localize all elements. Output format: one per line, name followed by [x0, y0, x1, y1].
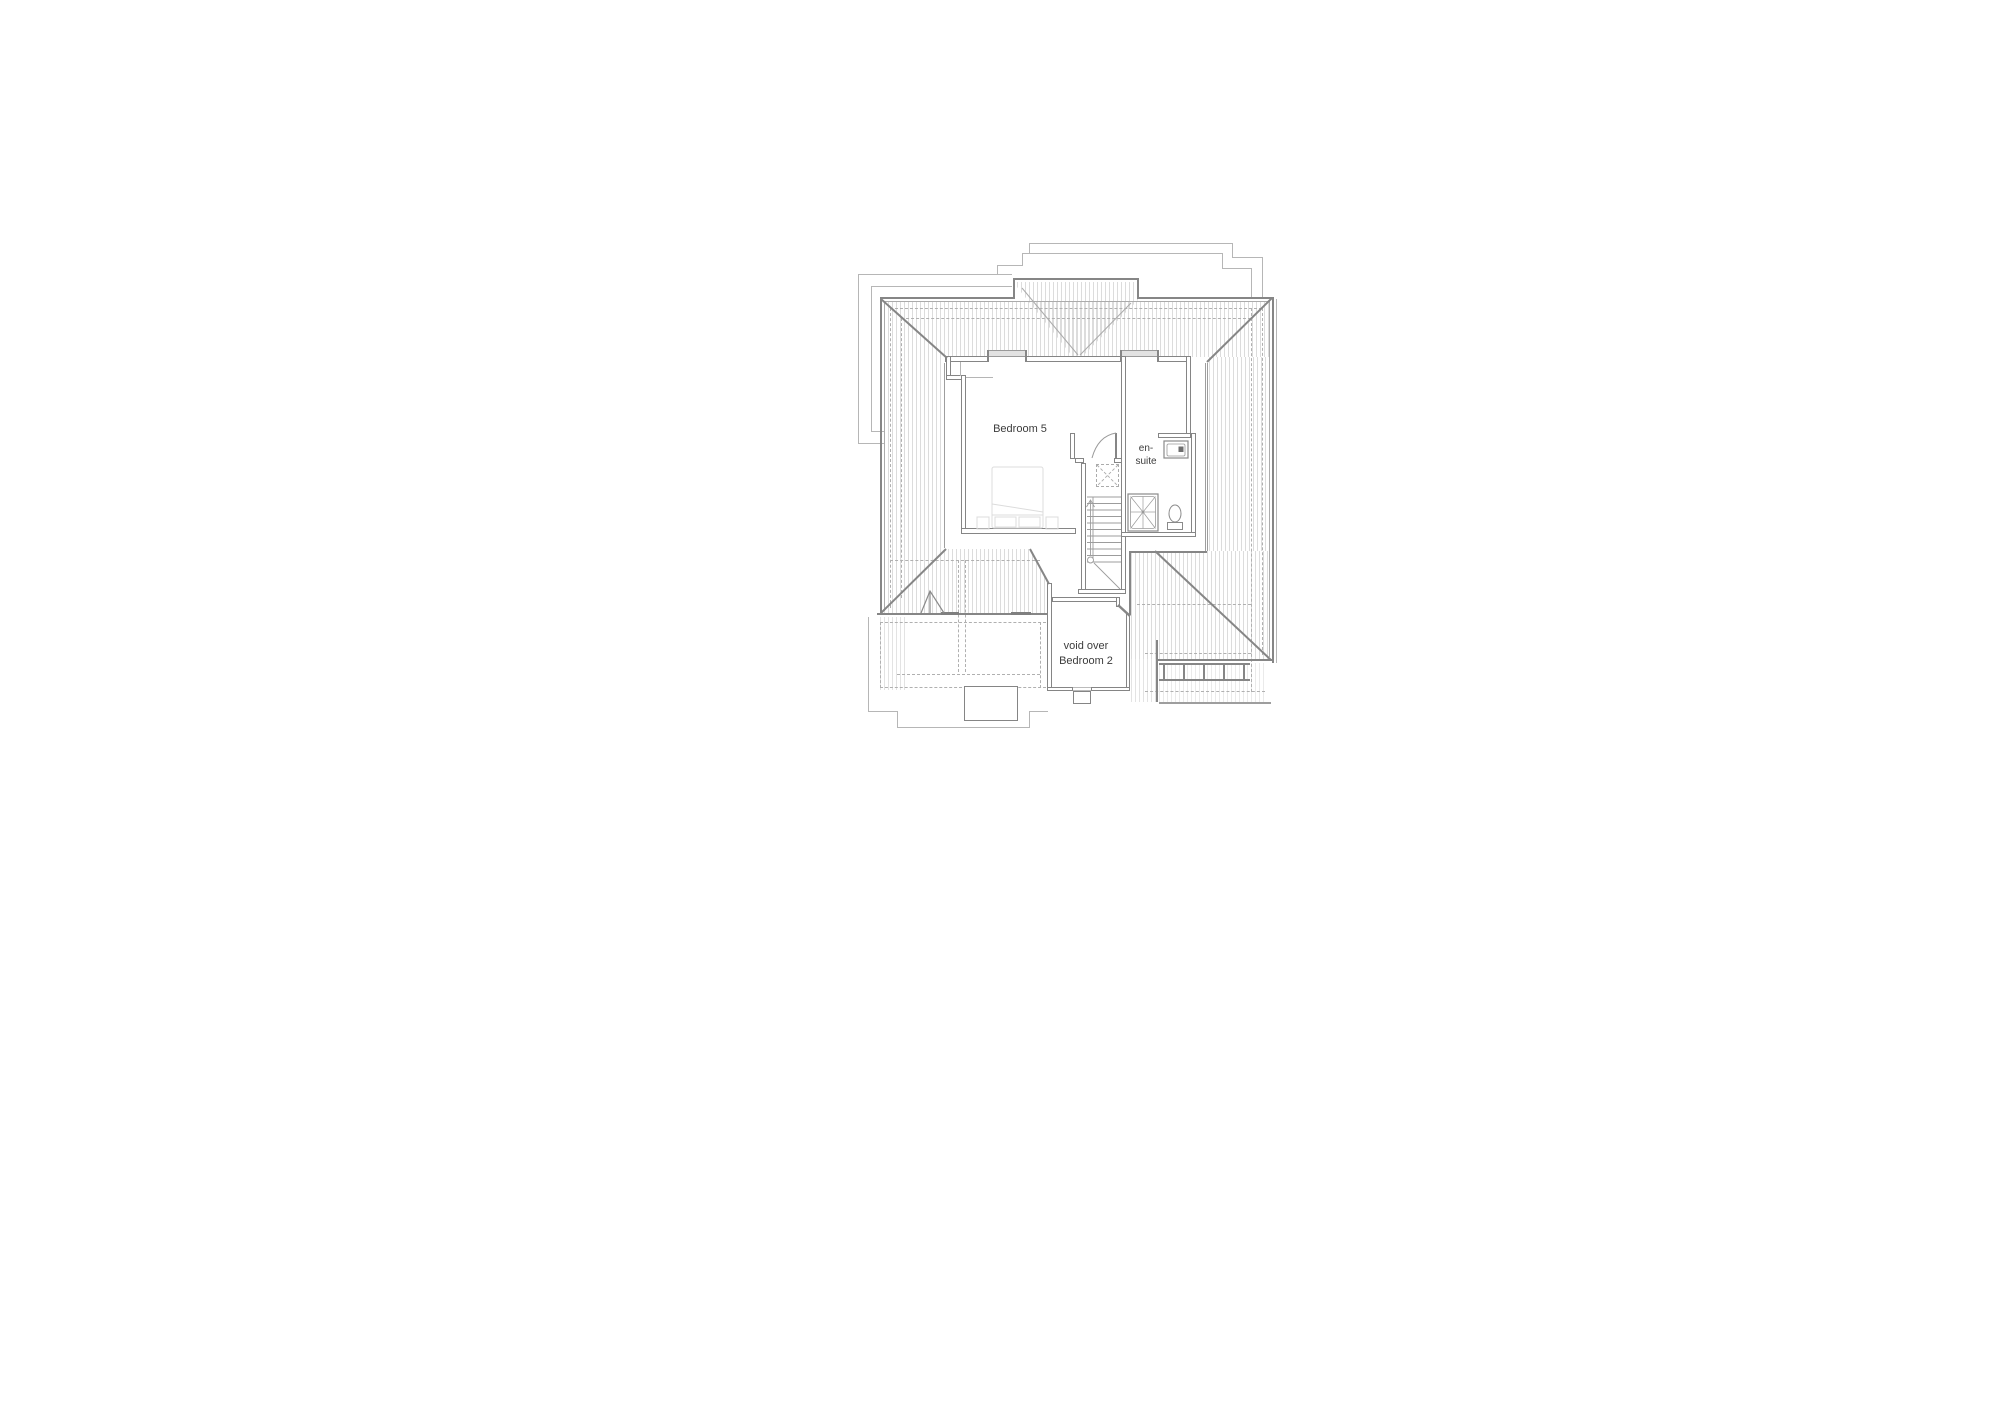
bay-gable [921, 591, 944, 613]
label-ensuite-line2: suite [1127, 455, 1165, 468]
sink-icon [1164, 441, 1188, 458]
bed-icon [977, 467, 1058, 529]
label-ensuite-line1: en- [1127, 442, 1165, 455]
shower-icon [1128, 494, 1158, 531]
label-ensuite: en- suite [1127, 442, 1165, 468]
label-void-line1: void over [1047, 639, 1125, 654]
label-void-line2: Bedroom 2 [1047, 654, 1125, 669]
rooflight-cross-icon [1097, 465, 1118, 486]
label-void: void over Bedroom 2 [1047, 639, 1125, 669]
toilet-icon [1168, 505, 1183, 530]
gable-inner-lines [1022, 288, 1131, 355]
door-arc [1092, 433, 1116, 458]
stairs [1087, 497, 1122, 589]
plan-linework [0, 0, 2000, 1415]
floor-plan-canvas: Bedroom 5 en- suite void over Bedroom 2 [0, 0, 2000, 1415]
label-bedroom5: Bedroom 5 [975, 423, 1065, 435]
